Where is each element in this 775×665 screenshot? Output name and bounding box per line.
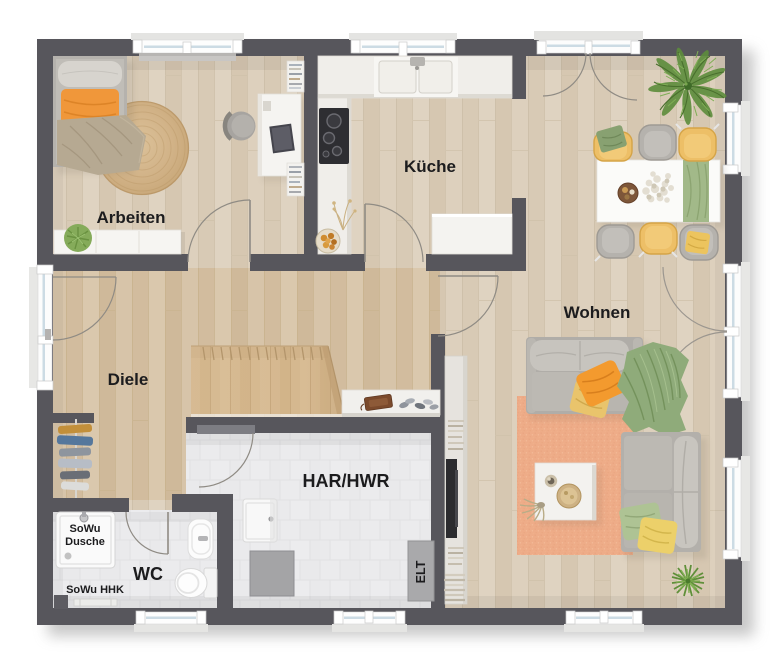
svg-text:Dusche: Dusche xyxy=(65,536,105,548)
svg-text:Diele: Diele xyxy=(108,370,149,389)
svg-text:WC: WC xyxy=(133,564,163,584)
svg-text:ELT: ELT xyxy=(414,560,428,583)
svg-text:Arbeiten: Arbeiten xyxy=(97,208,166,227)
svg-text:SoWu HHK: SoWu HHK xyxy=(66,584,124,596)
svg-text:Wohnen: Wohnen xyxy=(564,303,631,322)
svg-text:SoWu: SoWu xyxy=(70,523,101,535)
svg-text:HAR/HWR: HAR/HWR xyxy=(303,471,390,491)
svg-text:Küche: Küche xyxy=(404,157,456,176)
